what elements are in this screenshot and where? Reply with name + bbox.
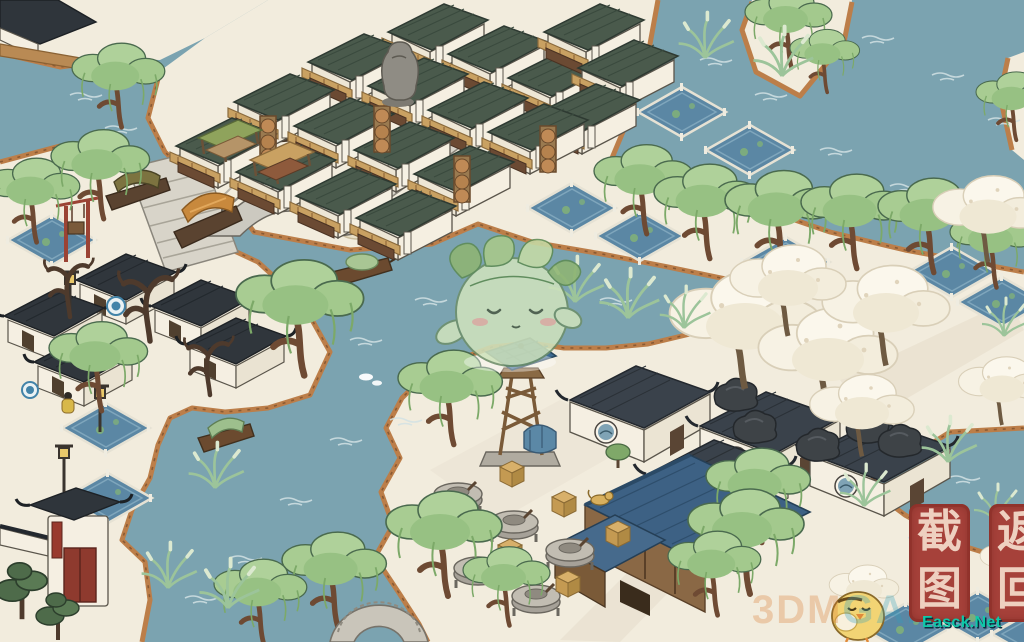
- background-watermark-left: 3DM: [752, 588, 842, 632]
- site-watermark: Easck.Net: [922, 614, 1001, 632]
- screenshot-seal-button[interactable]: 截图: [909, 504, 970, 622]
- game-map: [0, 0, 1024, 642]
- screenshot-root: 3DMGAME 截图 返回 Easck.Net: [0, 0, 1024, 642]
- return-seal-button[interactable]: 返回: [989, 504, 1024, 622]
- blue-tarp-cart: [524, 425, 556, 453]
